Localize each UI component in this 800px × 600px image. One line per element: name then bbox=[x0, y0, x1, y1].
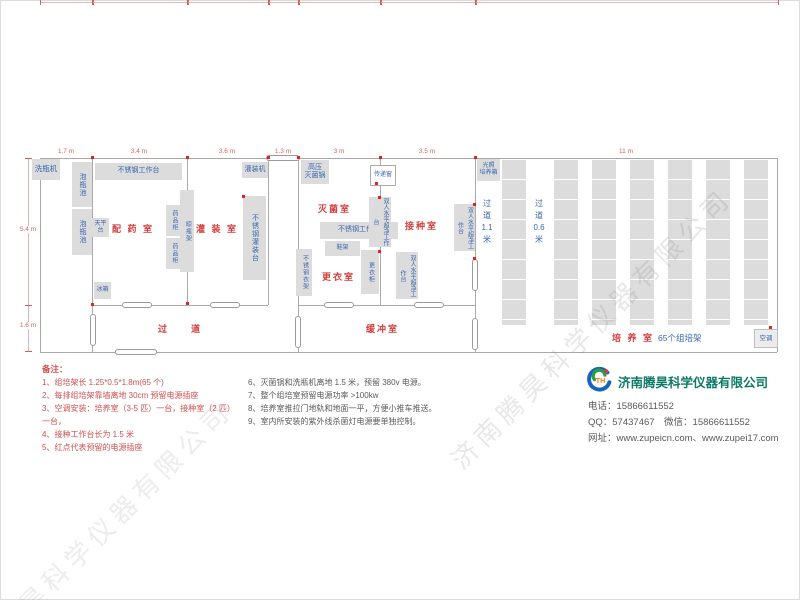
equipment-fridge: 冰箱 bbox=[94, 282, 111, 299]
wall bbox=[40, 158, 777, 159]
room-label-buffer: 缓冲室 bbox=[366, 322, 399, 335]
dim-label: 3.5 m bbox=[417, 148, 437, 155]
power-outlet-dot bbox=[379, 156, 382, 159]
wall bbox=[92, 305, 268, 306]
room-label-steril: 灭菌室 bbox=[318, 202, 351, 215]
equipment-light-incubator: 光照 培养箱 bbox=[477, 159, 500, 181]
note-item: 7、整个组培室预留电源功率 >100kw bbox=[248, 389, 508, 402]
note-item: 4、接种工作台长为 1.5 米 bbox=[42, 428, 242, 441]
power-outlet-dot bbox=[473, 203, 476, 206]
power-outlet-dot bbox=[375, 182, 378, 185]
incubator-label-line1: 光照 bbox=[477, 163, 500, 170]
dim-label: 5.4 m bbox=[20, 226, 36, 233]
door bbox=[266, 155, 300, 161]
culture-shelf-rack bbox=[630, 160, 654, 325]
incubator-label-line2: 培养箱 bbox=[477, 170, 500, 177]
dim-segment bbox=[92, 0, 189, 5]
power-outlet-dot bbox=[242, 195, 245, 198]
door bbox=[472, 318, 478, 350]
equipment-locker: 更衣柜 bbox=[361, 250, 379, 294]
company-qq-wechat: QQ：57437467 微信：15866611552 bbox=[588, 414, 750, 428]
equipment-filling-machine: 灌装机 bbox=[242, 162, 268, 178]
dim-label: 3.4 m bbox=[129, 148, 149, 155]
equipment-air-conditioner: 空调 bbox=[754, 329, 778, 348]
notes-title: 备注： bbox=[42, 363, 68, 375]
dim-label: 1.7 m bbox=[56, 148, 76, 155]
dim-tick bbox=[25, 305, 32, 306]
culture-rack-count: 65个组培架 bbox=[658, 332, 701, 344]
culture-shelf-rack bbox=[668, 160, 692, 325]
equipment-balance-table: 天平台 bbox=[92, 218, 109, 237]
door bbox=[122, 302, 152, 308]
dim-segment bbox=[40, 0, 94, 5]
autoclave-label-line1: 高压 bbox=[301, 164, 329, 172]
equipment-bottle-washer: 洗瓶机 bbox=[32, 159, 60, 180]
equipment-clean-bench: 双人水平超净工作台 bbox=[369, 197, 391, 247]
equipment-clean-bench: 双人水平超净工作台 bbox=[454, 204, 475, 251]
equipment-soak-pool: 泡瓶池 bbox=[72, 162, 92, 207]
note-item: 9、室内所安装的紫外线杀菌灯电源要单独控制。 bbox=[248, 415, 508, 428]
note-item: 2、每排组培架靠墙离地 30cm 预留电源插座 bbox=[42, 389, 242, 402]
culture-shelf-rack bbox=[706, 160, 730, 325]
aisle-label-0-6m: 过道0.6米 bbox=[532, 198, 546, 246]
aisle-label-1-1m: 过道1.1米 bbox=[480, 198, 494, 246]
note-item: 8、培养室推拉门地轨和地面一平，方便小推车推送。 bbox=[248, 402, 508, 415]
dim-segment bbox=[298, 0, 382, 5]
power-outlet-dot bbox=[297, 156, 300, 159]
company-name: 济南腾昊科学仪器有限公司 bbox=[618, 372, 768, 391]
door bbox=[115, 349, 157, 355]
company-logo: TH bbox=[586, 366, 612, 392]
equipment-soak-pool: 泡瓶池 bbox=[72, 209, 92, 255]
room-label-inoc: 接种室 bbox=[405, 219, 438, 232]
equipment-pass-window: 传递窗 bbox=[370, 165, 396, 186]
equipment-steel-worktable: 不锈钢工作台 bbox=[95, 163, 182, 180]
wall bbox=[40, 158, 41, 352]
door bbox=[210, 302, 240, 308]
note-item: 1、组培架长 1.25*0.5*1.8m(65 个) bbox=[42, 376, 242, 389]
door bbox=[295, 316, 301, 348]
door bbox=[90, 314, 96, 346]
power-outlet-dot bbox=[769, 326, 772, 329]
equipment-steel-filling-table: 不锈钢灌装台 bbox=[243, 196, 266, 280]
culture-shelf-rack bbox=[592, 160, 616, 325]
power-outlet-dot bbox=[186, 156, 189, 159]
dim-segment bbox=[268, 0, 300, 5]
equipment-clothes-rack: 不锈钢衣架 bbox=[296, 249, 312, 296]
company-website: 网址：www.zupeicn.com、www.zupei17.com bbox=[588, 430, 779, 444]
room-label-prep: 配 药 室 bbox=[112, 222, 154, 235]
power-outlet-dot bbox=[267, 156, 270, 159]
note-item: 5、红点代表预留的电源插座 bbox=[42, 441, 242, 454]
power-outlet-dot bbox=[186, 302, 189, 305]
equipment-medicine-cabinet: 药品柜 bbox=[166, 205, 181, 236]
note-item: 3、空调安装：培养室（3-5 匹）一台，接种室（2 匹）一台， bbox=[42, 402, 242, 428]
notes-column-2: 6、灭菌锅和洗瓶机离地 1.5 米，预留 380v 电源。 7、整个组培室预留电… bbox=[248, 376, 508, 428]
dim-tick bbox=[25, 158, 32, 159]
culture-shelf-rack bbox=[744, 160, 768, 325]
autoclave-label-line2: 灭菌锅 bbox=[301, 172, 329, 180]
company-phone: 电话：15866611552 bbox=[588, 398, 674, 412]
equipment-autoclave: 高压 灭菌锅 bbox=[301, 160, 329, 184]
equipment-clean-bench: 双人水平超净工作台 bbox=[396, 252, 418, 299]
equipment-shoe-rack: 鞋架 bbox=[325, 241, 360, 256]
power-outlet-dot bbox=[474, 156, 477, 159]
culture-shelf-rack bbox=[554, 160, 578, 325]
power-outlet-dot bbox=[378, 250, 381, 253]
dim-label: 3.6 m bbox=[217, 148, 237, 155]
wall bbox=[777, 158, 778, 352]
equipment-medicine-cabinet: 药品柜 bbox=[166, 238, 181, 269]
equipment-bottle-rack: 晾瓶架 bbox=[180, 190, 194, 272]
dim-label: 1.3 m bbox=[273, 148, 293, 155]
dim-tick bbox=[25, 351, 32, 352]
wall bbox=[268, 158, 269, 305]
dim-segment bbox=[475, 0, 779, 5]
power-outlet-dot bbox=[378, 196, 381, 199]
door bbox=[324, 302, 354, 308]
power-outlet-dot bbox=[473, 257, 476, 260]
dim-label: 1.6 m bbox=[20, 322, 36, 329]
room-label-fill: 灌 装 室 bbox=[196, 222, 238, 235]
dim-segment bbox=[380, 0, 477, 5]
culture-shelf-rack bbox=[502, 160, 526, 325]
floor-plan-page: 1.7 m 3.4 m 3.6 m 1.3 m 3 m 3.5 m 11 m 5… bbox=[0, 0, 800, 600]
power-outlet-dot bbox=[91, 303, 94, 306]
svg-text:TH: TH bbox=[596, 377, 606, 385]
notes-column-1: 1、组培架长 1.25*0.5*1.8m(65 个) 2、每排组培架靠墙离地 3… bbox=[42, 376, 242, 454]
dim-label: 3 m bbox=[332, 148, 347, 155]
note-item: 6、灭菌锅和洗瓶机离地 1.5 米，预留 380v 电源。 bbox=[248, 376, 508, 389]
room-label-dress: 更衣室 bbox=[322, 270, 355, 283]
room-label-culture: 培 养 室 bbox=[612, 331, 654, 344]
door bbox=[472, 259, 478, 291]
culture-room-caption: 培 养 室 65个组培架 bbox=[612, 331, 701, 344]
dim-label: 11 m bbox=[617, 148, 635, 155]
door bbox=[414, 302, 444, 308]
power-outlet-dot bbox=[91, 156, 94, 159]
dim-segment bbox=[187, 0, 270, 5]
room-label-corridor: 过 道 bbox=[158, 322, 202, 335]
